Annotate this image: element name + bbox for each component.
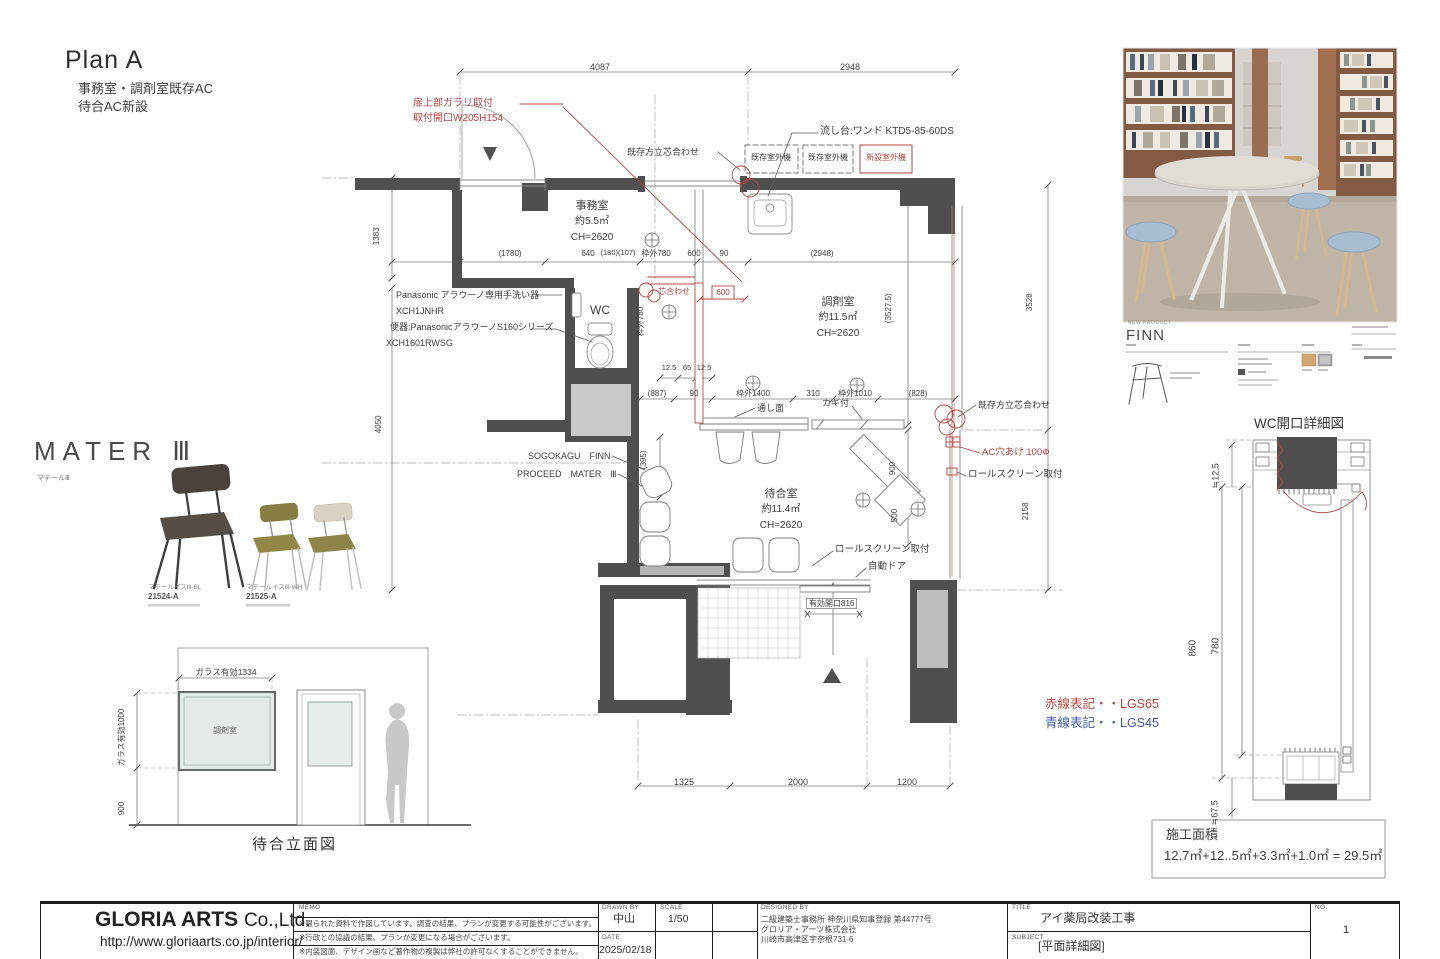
dim-828: (828)	[909, 389, 928, 398]
label-unit-2: 既存室外機	[808, 153, 848, 162]
room-waiting-area: 約11.4㎡	[762, 504, 801, 516]
area-box-formula: 12.7㎡+12..5㎡+3.3㎡+1.0㎡ = 29.5㎡	[1164, 849, 1382, 864]
label-unit-1: 既存室外機	[751, 153, 791, 162]
drawn-by-value: 中山	[613, 913, 635, 926]
dim-2948b: (2948)	[810, 249, 833, 258]
designed-by-label: DESIGNED BY	[761, 904, 809, 911]
dim-waku1400: 枠外1400	[736, 389, 770, 398]
elev-room-label: 調剤室	[213, 726, 237, 735]
legend-blue-lgs45: 青線表記・・LGS45	[1045, 716, 1159, 730]
room-waiting-ch: CH=2620	[760, 520, 803, 532]
dim-4050: 4050	[374, 415, 383, 433]
dim-3527: (3527.5)	[884, 293, 893, 323]
note-garari-2: 取付開口W205H154	[413, 113, 503, 125]
designed-line-1: 二級建築士事務所 神奈川県知事登録 第44777号	[761, 915, 932, 924]
finn-name: FINN	[1126, 327, 1165, 344]
dim-waku780: 枠外780	[641, 249, 670, 258]
dim-65: 65	[683, 364, 691, 373]
note-pana-3: 便器:PanasonicアラウーノS160シリーズ	[390, 322, 554, 332]
sink-fixture	[748, 194, 792, 234]
elev-glass-height: ガラス有効1000	[117, 709, 126, 767]
memo-note-1: ※限られた資料で作図しています。調査の結果、プランが変更する可能性がございます。	[299, 920, 596, 929]
note-sink: 流し台:ワンド KTD5-85-60DS	[820, 126, 954, 138]
chair-dark	[154, 463, 243, 588]
room-dispensary-ch: CH=2620	[817, 328, 860, 340]
dim-600: 600	[687, 249, 700, 258]
dim-887: (887)	[648, 389, 667, 398]
dim-500v: 500	[890, 509, 899, 522]
note-autodoor: 自動ドア	[868, 562, 906, 573]
dim-2948: 2948	[840, 62, 860, 72]
dim-395: (395)	[639, 451, 648, 470]
dim-3528: 3528	[1025, 293, 1034, 311]
dim-125a: 12.5	[662, 364, 677, 373]
memo-note-3: ※内装図面、デザイン画など著作物の複製は弊社の許可なくすることができません。	[299, 948, 583, 957]
dim-1200: 1200	[897, 777, 917, 787]
note-sogokagu: SOGOKAGU FINN	[528, 451, 611, 461]
dim-600-red: 600	[716, 288, 729, 297]
dim-125b: 12.5	[697, 364, 712, 373]
wc-dim-780: 780	[1211, 638, 1223, 655]
note-tooshi: 通し面	[757, 403, 784, 413]
note-pana-2: XCH1JNHR	[396, 306, 444, 316]
finn-color-swatches	[1302, 354, 1332, 371]
subject-value: [平面詳細図]	[1038, 940, 1105, 954]
finn-stool-icon	[1129, 364, 1167, 405]
drawn-by-label: DRAWN BY	[602, 904, 639, 911]
dim-2000: 2000	[788, 777, 808, 787]
label-unit-new: 新設室外機	[866, 153, 906, 162]
elev-glass-width: ガラス有効1334	[195, 668, 256, 678]
finn-tag: NEW PRODUCT	[1128, 321, 1171, 327]
dim-900v: 900	[888, 462, 897, 475]
title-label: TITLE	[1012, 904, 1031, 911]
room-waiting-name: 待合室	[765, 488, 798, 501]
scale-value: 1/50	[668, 913, 688, 925]
scale-label: SCALE	[660, 904, 683, 911]
note-pana-1: Panasonic アラウーノ専用手洗い器	[396, 290, 539, 300]
room-office-area: 約5.5㎡	[575, 216, 609, 228]
note-ac-hole: AC穴あけ 100Φ	[982, 448, 1050, 459]
elev-900: 900	[117, 802, 126, 815]
dim-entry-816: 有効開口816	[806, 598, 857, 609]
waiting-elevation	[130, 648, 470, 828]
note-align-top: 既存方立芯合わせ	[627, 147, 699, 157]
chair-olive	[252, 502, 306, 590]
header-note-2: 待合AC新設	[78, 100, 148, 115]
room-dispensary-name: 調剤室	[822, 296, 855, 309]
note-garari-1: 扉上部ガラリ取付	[413, 98, 493, 110]
legend-red-lgs65: 赤線表記・・LGS65	[1045, 697, 1159, 711]
wc-detail-title: WC開口詳細図	[1254, 416, 1344, 432]
date-label: DATE	[602, 934, 620, 941]
header-note-1: 事務室・調剤室既存AC	[78, 82, 213, 97]
area-box-label: 施工面積	[1166, 828, 1218, 843]
note-shin: 芯合わせ	[658, 287, 690, 296]
chair-cream	[307, 503, 361, 590]
dim-640: 640	[581, 249, 594, 258]
room-dispensary-area: 約11.5㎡	[819, 312, 858, 324]
mater-title: MATER Ⅲ	[34, 437, 197, 467]
dim-4087: 4087	[590, 62, 610, 72]
dim-waku1010: 枠外1010	[838, 389, 872, 398]
memo-label: MEMO	[299, 904, 320, 911]
furniture-photo	[1123, 48, 1397, 322]
openings	[460, 178, 962, 585]
dim-90: 90	[720, 249, 729, 258]
note-rollscreen-2: ロールスクリーン取付	[835, 545, 930, 556]
designed-line-3: 川崎市高津区宇奈根731-6	[761, 935, 853, 944]
mater-chair1-name: マテールイスⅢ-BL	[148, 584, 201, 591]
wc-dim-860: 860	[1188, 640, 1200, 657]
company-name: GLORIA ARTS	[95, 908, 238, 931]
elev-title: 待合立面図	[252, 836, 337, 853]
note-align-right: 既存方立芯合わせ	[978, 400, 1050, 410]
no-label: NO.	[1315, 904, 1327, 911]
wc-dim-675: ≒67.5	[1210, 800, 1220, 825]
page-title: Plan A	[65, 46, 143, 75]
dim-310: 310	[806, 389, 819, 398]
dim-1780: (1780)	[498, 249, 521, 258]
note-pana-4: XCH1601RWSG	[386, 338, 453, 348]
note-proceed: PROCEED MATER Ⅲ	[517, 469, 617, 479]
plan-linework	[0, 0, 1440, 959]
dim-1383: 1383	[372, 227, 381, 245]
dim-1325: 1325	[674, 777, 694, 787]
dim-180-107: (180)(107)	[600, 249, 635, 258]
dim-waku780-v: 枠外780	[636, 307, 645, 336]
designed-line-2: グロリア・アーツ株式会社	[761, 925, 856, 934]
finn-product-block	[1126, 314, 1396, 404]
title-value: アイ薬局改装工事	[1040, 912, 1135, 926]
wc-opening-detail	[1212, 437, 1370, 818]
mater-subtitle: マテールⅢ	[37, 475, 70, 483]
room-office-ch: CH=2620	[571, 232, 614, 244]
room-wc: WC	[590, 304, 610, 318]
note-kagi: カギ付	[822, 398, 849, 408]
room-office-name: 事務室	[576, 200, 609, 213]
mater-chair2-name: マテールイスⅢ-WH	[246, 584, 302, 591]
wc-dim-125: ≒12.5	[1211, 463, 1221, 488]
mater-chair1-code: 21524-A	[148, 592, 179, 601]
mater-chairs	[154, 463, 361, 590]
no-value: 1	[1343, 924, 1349, 937]
drawing-sheet: Plan A 事務室・調剤室既存AC 待合AC新設 4087 2948 扉上部ガ…	[0, 0, 1440, 959]
entry-tile-grid	[698, 588, 800, 658]
dim-90b: 90	[690, 389, 699, 398]
micro-text-bars	[148, 604, 290, 607]
memo-note-2: ※行政との協議の結果、プランが変更になる場合がございます。	[299, 934, 514, 943]
mater-chair2-code: 21525-A	[246, 592, 277, 601]
company-url: http://www.gloriaarts.co.jp/interior/	[100, 934, 303, 950]
note-rollscreen-1: ロールスクリーン取付	[968, 470, 1063, 481]
walls	[355, 147, 957, 723]
dim-2158: 2158	[1021, 502, 1030, 520]
company-logo: GLORIA ARTS Co.,Ltd.	[95, 908, 311, 932]
date-value: 2025/02/18	[599, 944, 652, 956]
